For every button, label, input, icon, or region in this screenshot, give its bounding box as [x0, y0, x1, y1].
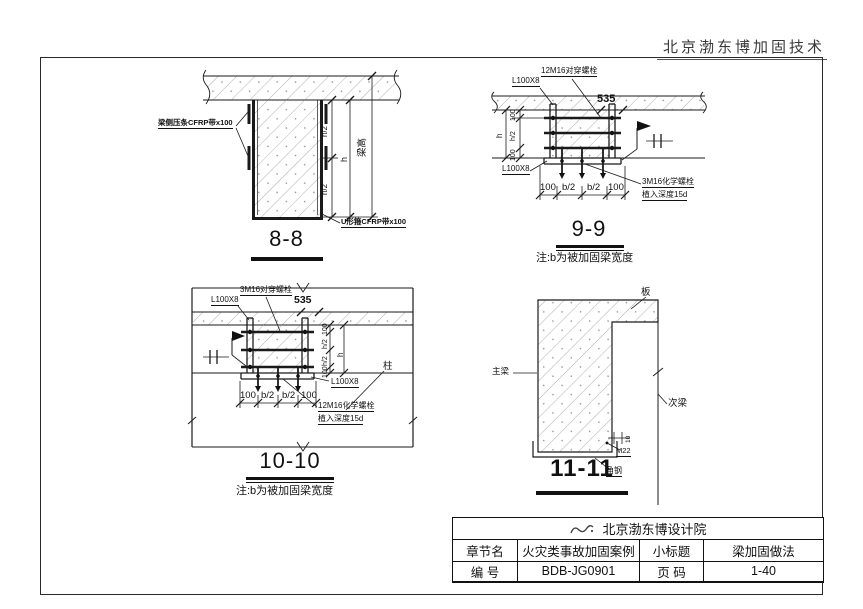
dim-bottom-b2-right: b/2 — [587, 183, 600, 193]
company-logo-icon — [569, 522, 595, 536]
title-block-company-row: 北京渤东博设计院 — [453, 518, 823, 540]
section-8-8-title: 8-8 — [244, 226, 329, 252]
dim-h-half-bottom: h/2 — [321, 184, 329, 195]
section-10-10-title-underline2 — [246, 482, 334, 483]
drawing-sheet: 北京渤东博加固技术 — [0, 0, 863, 609]
dim-bottom-b2-left: b/2 — [562, 183, 575, 193]
chapter-value: 火灾类事故加固案例 — [517, 540, 639, 561]
subtitle-value: 梁加固做法 — [703, 540, 823, 561]
angle-size-label-right: L100X8 — [331, 378, 359, 388]
dim-h: h — [340, 157, 349, 162]
section-10-10-title: 10-10 — [238, 448, 342, 474]
dim-bottom-b2-left: b/2 — [261, 391, 274, 401]
section-9-9-title-underline — [556, 245, 624, 248]
chapter-label: 章节名 — [453, 540, 517, 561]
page-value: 1-40 — [703, 561, 823, 582]
title-block: 北京渤东博设计院 章节名 火灾类事故加固案例 小标题 梁加固做法 编 号 BDB… — [452, 517, 824, 583]
page-label: 页 码 — [639, 561, 703, 582]
dim-right-h-half-1: h/2 — [322, 339, 329, 349]
dim-left-100-bottom: 100 — [510, 149, 517, 161]
dim-left-100-top: 100 — [510, 109, 517, 121]
angle-size-label-top: L100X8 — [512, 77, 540, 87]
dim-right-100-bottom: 100 — [322, 366, 329, 378]
dim-bottom-100-right: 100 — [301, 391, 317, 401]
through-bolt-label: 12M16对穿螺栓 — [541, 67, 597, 77]
design-institute-name: 北京渤东博设计院 — [602, 519, 706, 538]
angle-size-label-bottom: L100X8 — [502, 165, 530, 175]
section-9-9-title-underline2 — [556, 250, 624, 251]
section-11-11-title-underline — [536, 491, 628, 495]
dim-right-100-top: 100 — [322, 323, 329, 335]
chem-bolt-label: 3M16化学螺栓 — [642, 178, 694, 188]
main-beam-label: 主梁 — [492, 367, 509, 376]
dim-535: 535 — [294, 295, 312, 306]
angle-size-label-top: L100X8 — [211, 296, 239, 306]
section-9-9-title: 9-9 — [553, 216, 625, 242]
embed-depth-label: 植入深度15d — [642, 191, 687, 201]
dim-h-half-top: h/2 — [321, 126, 329, 137]
number-label: 编 号 — [453, 561, 517, 582]
cfrp-side-strip-label: 梁侧压条CFRP带x100 — [158, 119, 233, 129]
slab-label: 板 — [641, 288, 651, 298]
dim-right-h-half-2: h/2 — [322, 356, 329, 366]
section-11-11-title: 11-11 — [528, 455, 636, 483]
section-10-10-note: 注:b为被加固梁宽度 — [236, 486, 333, 498]
title-block-grid: 章节名 火灾类事故加固案例 小标题 梁加固做法 编 号 BDB-JG0901 页… — [453, 540, 823, 581]
dim-bottom-b2-right: b/2 — [282, 391, 295, 401]
section-9-9-note: 注:b为被加固梁宽度 — [536, 253, 633, 265]
chem-bolt-label: 12M16化学螺栓 — [318, 402, 374, 412]
sheet-border — [40, 57, 823, 595]
dim-small: 10 — [626, 436, 633, 443]
secondary-beam-label: 次梁 — [668, 399, 687, 409]
dim-left-h: h — [496, 134, 504, 138]
dim-bottom-100-left: 100 — [240, 391, 256, 401]
column-label: 柱 — [383, 362, 393, 372]
section-8-8-title-underline — [251, 257, 323, 261]
dim-right-h: h — [337, 353, 345, 357]
through-bolt-label: 3M16对穿螺栓 — [240, 286, 292, 296]
dim-beam-height: 梁高 — [358, 138, 368, 157]
subtitle-label: 小标题 — [639, 540, 703, 561]
dim-left-h-half: h/2 — [510, 131, 517, 141]
dim-bottom-100-left: 100 — [540, 183, 556, 193]
dim-535: 535 — [597, 94, 615, 106]
section-10-10-title-underline — [246, 477, 334, 480]
embed-depth-label: 植入深度15d — [318, 415, 363, 425]
dim-bottom-100-right: 100 — [608, 183, 624, 193]
number-value: BDB-JG0901 — [517, 561, 639, 582]
cfrp-u-wrap-label: U形箍CFRP带x100 — [341, 218, 406, 228]
